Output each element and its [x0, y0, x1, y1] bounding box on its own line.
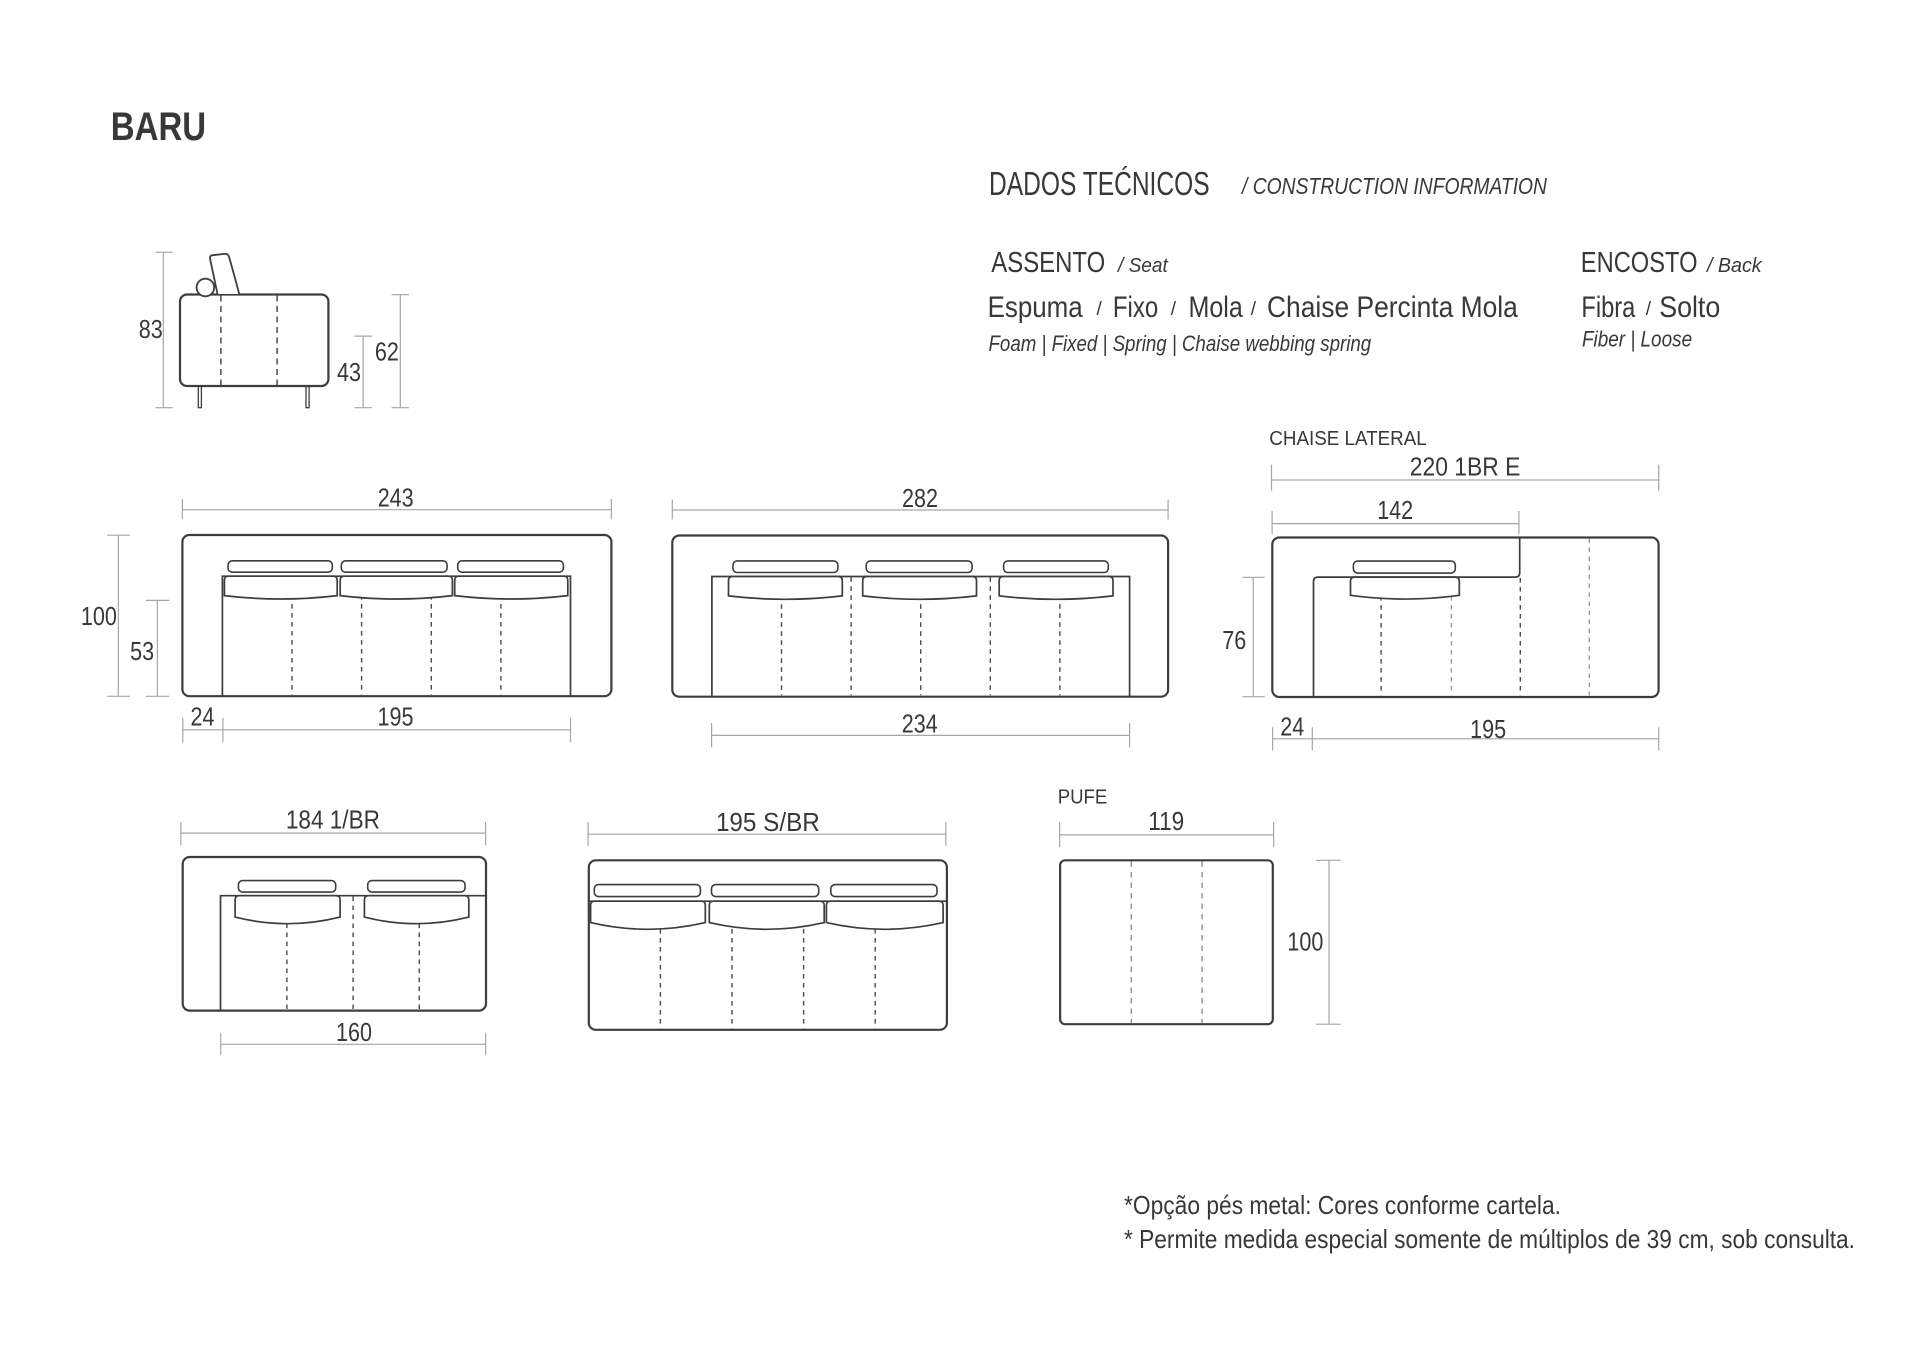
svg-text:Foam | Fixed | Spring | Chais: Foam | Fixed | Spring | Chaise webbing s… — [989, 331, 1372, 356]
svg-text:119: 119 — [1148, 806, 1184, 836]
svg-text:24: 24 — [1280, 712, 1304, 742]
svg-text:Solto: Solto — [1659, 291, 1720, 324]
svg-text:100: 100 — [1287, 926, 1323, 956]
svg-text:/ Seat: / Seat — [1116, 255, 1169, 277]
svg-text:/ CONSTRUCTION INFORMATION: / CONSTRUCTION INFORMATION — [1240, 173, 1547, 199]
svg-text:*Opção pés metal: Cores confor: *Opção pés metal: Cores conforme cartela… — [1124, 1190, 1561, 1220]
svg-text:142: 142 — [1377, 495, 1413, 525]
svg-text:ENCOSTO: ENCOSTO — [1581, 247, 1698, 279]
svg-text:Chaise Percinta Mola: Chaise Percinta Mola — [1267, 291, 1518, 324]
svg-text:DADOS TEĆNICOS: DADOS TEĆNICOS — [989, 165, 1210, 202]
svg-text:/ Back: / Back — [1705, 255, 1763, 277]
svg-text:195 S/BR: 195 S/BR — [716, 807, 820, 837]
svg-text:CHAISE LATERAL: CHAISE LATERAL — [1269, 428, 1426, 450]
svg-text:160: 160 — [336, 1017, 372, 1047]
svg-text:/: / — [1646, 299, 1652, 320]
svg-text:/: / — [1171, 299, 1177, 320]
svg-text:BARU: BARU — [111, 105, 206, 149]
svg-text:282: 282 — [902, 483, 938, 513]
svg-text:220 1BR E: 220 1BR E — [1410, 451, 1521, 481]
svg-text:Espuma: Espuma — [988, 291, 1083, 324]
svg-text:243: 243 — [378, 482, 414, 512]
svg-text:24: 24 — [191, 701, 215, 731]
svg-text:100: 100 — [81, 601, 117, 631]
svg-text:43: 43 — [337, 357, 361, 387]
svg-text:/: / — [1251, 299, 1257, 320]
svg-text:Mola: Mola — [1189, 291, 1244, 324]
svg-text:76: 76 — [1222, 625, 1246, 655]
svg-text:184 1/BR: 184 1/BR — [286, 805, 380, 835]
svg-text:Fiber | Loose: Fiber | Loose — [1582, 327, 1692, 352]
svg-text:Fibra: Fibra — [1581, 291, 1635, 324]
svg-text:234: 234 — [902, 708, 938, 738]
svg-text:PUFE: PUFE — [1058, 787, 1108, 809]
svg-text:53: 53 — [130, 636, 154, 666]
svg-text:* Permite medida especial some: * Permite medida especial somente de múl… — [1124, 1224, 1855, 1254]
svg-text:ASSENTO: ASSENTO — [991, 247, 1105, 279]
svg-text:195: 195 — [378, 701, 414, 731]
svg-text:62: 62 — [375, 337, 399, 367]
svg-text:Fixo: Fixo — [1113, 291, 1158, 324]
svg-text:/: / — [1097, 299, 1103, 320]
svg-text:83: 83 — [139, 314, 163, 344]
svg-text:195: 195 — [1470, 714, 1506, 744]
